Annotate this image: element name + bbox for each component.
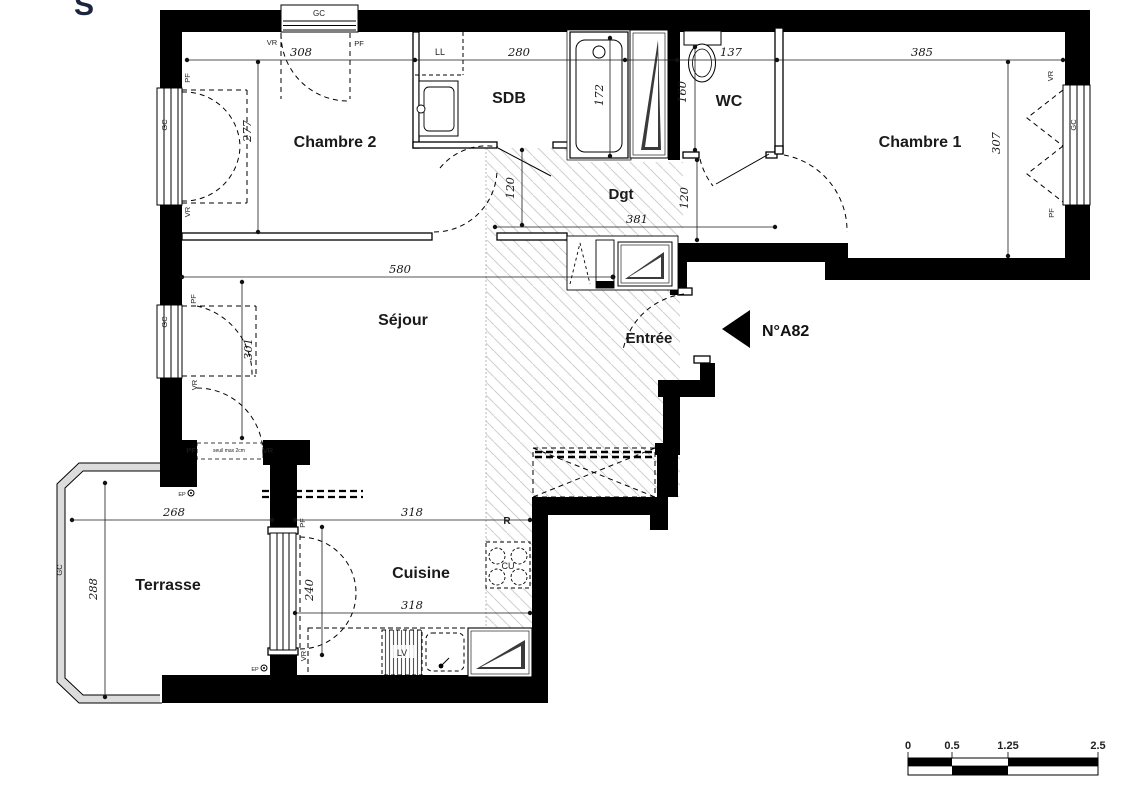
door-arc-wc xyxy=(700,159,713,186)
room-label-terrasse: Terrasse xyxy=(135,577,201,594)
tag-vr-terrasse-door: VR xyxy=(263,446,274,455)
floor-plan-page: 308 280 137 385 381 580 268 318 318 277 … xyxy=(0,0,1143,800)
door-leaf-wc xyxy=(716,154,769,184)
tag-lv: LV xyxy=(397,648,407,658)
scale-tick-05: 0.5 xyxy=(944,740,959,752)
tag-gc-sejour: GC xyxy=(160,316,169,328)
tag-vr-chambre2: VR xyxy=(183,206,192,217)
room-label-wc: WC xyxy=(716,93,743,110)
tag-ep-1: EP xyxy=(178,492,186,498)
corner-letter: S xyxy=(74,0,94,22)
tag-gc-chambre1: GC xyxy=(1069,119,1078,131)
dim-240: 240 xyxy=(302,579,316,602)
scale-tick-125: 1.25 xyxy=(997,740,1018,752)
room-label-cuisine: Cuisine xyxy=(392,565,450,582)
dim-137: 137 xyxy=(720,45,743,59)
scale-tick-25: 2.5 xyxy=(1090,740,1105,752)
tag-pf-cuisine: PF xyxy=(298,518,307,528)
dim-308: 308 xyxy=(290,45,312,59)
scale-tick-0: 0 xyxy=(905,740,911,752)
unit-number-label: N°A82 xyxy=(762,323,809,340)
room-label-dgt: Dgt xyxy=(609,186,634,203)
dim-280: 280 xyxy=(507,45,530,59)
dim-268: 268 xyxy=(162,505,185,519)
dim-580: 580 xyxy=(389,262,411,276)
window-chambre2-left xyxy=(157,88,247,205)
tag-seuil-note: seuil max 2cm xyxy=(213,448,245,454)
room-label-entree: Entrée xyxy=(626,330,673,347)
dim-288: 288 xyxy=(86,578,100,601)
tag-gc-chambre2: GC xyxy=(160,119,169,131)
dim-385: 385 xyxy=(911,45,933,59)
tag-pf-chambre2: PF xyxy=(183,73,192,83)
tag-vr-top-window: VR xyxy=(267,38,278,47)
dim-381: 381 xyxy=(626,212,648,226)
floor-plan-svg: 308 280 137 385 381 580 268 318 318 277 … xyxy=(0,0,1143,800)
tag-ep-2: EP xyxy=(251,667,259,673)
ep-marker-1 xyxy=(188,490,194,496)
room-label-chambre1: Chambre 1 xyxy=(879,134,962,151)
tag-gc-top-window: GC xyxy=(313,9,325,18)
tag-pf-sejour: PF xyxy=(189,294,198,304)
ep-marker-2 xyxy=(261,665,267,671)
utility-column-sdb xyxy=(630,30,668,158)
utility-column-kitchen xyxy=(468,628,532,677)
dim-318-bottom: 318 xyxy=(401,598,423,612)
toilet xyxy=(684,31,721,82)
tag-vr-chambre1: VR xyxy=(1046,70,1055,81)
tag-vr-sejour: VR xyxy=(190,379,199,390)
room-label-sejour: Séjour xyxy=(378,312,428,329)
dim-120-left: 120 xyxy=(503,177,517,199)
tag-r: R xyxy=(503,516,511,527)
tag-vr-cuisine: VR xyxy=(299,650,308,661)
dim-172: 172 xyxy=(592,84,606,106)
tag-pf-terrasse-door: PF xyxy=(186,446,196,455)
room-label-sdb: SDB xyxy=(492,90,526,107)
dim-318-top: 318 xyxy=(401,505,423,519)
entrance-marker: N°A82 xyxy=(722,310,809,348)
entrance-arrow-icon xyxy=(722,310,750,348)
tag-ll: LL xyxy=(435,47,445,57)
scale-bar: 0 0.5 1.25 2.5 xyxy=(905,740,1106,775)
dim-277: 277 xyxy=(240,119,254,143)
door-arc-chambre1 xyxy=(784,155,847,232)
dim-301: 301 xyxy=(241,338,255,360)
entry-closet xyxy=(567,236,678,290)
tag-pf-chambre1: PF xyxy=(1047,208,1056,218)
tag-gc-terrasse: GC xyxy=(55,564,64,576)
washbasin xyxy=(417,81,458,136)
tag-cu: CU xyxy=(502,561,515,571)
tag-pf-top-window: PF xyxy=(354,39,364,48)
window-chambre1-right xyxy=(1027,85,1090,205)
kitchen-sink xyxy=(426,633,464,671)
room-label-chambre2: Chambre 2 xyxy=(294,134,377,151)
dim-120-right: 120 xyxy=(677,187,691,209)
dim-160: 160 xyxy=(675,81,689,103)
dim-307: 307 xyxy=(989,131,1003,154)
